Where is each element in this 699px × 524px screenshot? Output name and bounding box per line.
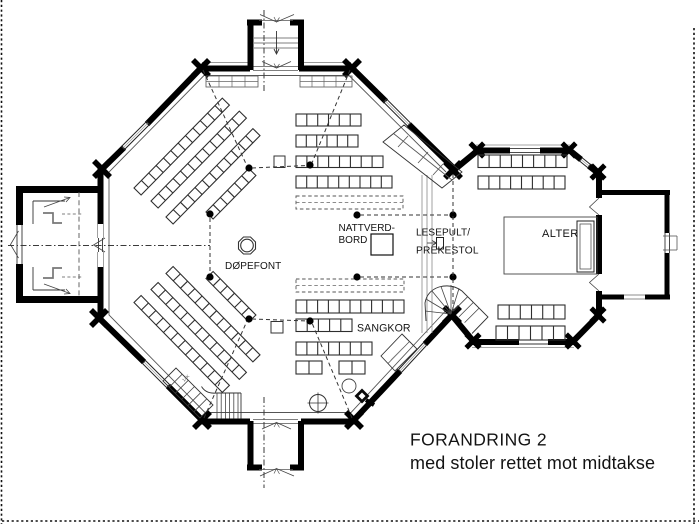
svg-text:BORD: BORD (339, 235, 368, 246)
svg-text:ALTER: ALTER (542, 228, 579, 240)
svg-text:DØPEFONT: DØPEFONT (225, 261, 281, 272)
svg-text:NATTVERD-: NATTVERD- (339, 223, 395, 234)
svg-text:LESEPULT/: LESEPULT/ (416, 228, 470, 239)
svg-text:SANGKOR: SANGKOR (357, 323, 411, 335)
svg-text:PREKESTOL: PREKESTOL (416, 246, 479, 257)
svg-text:med stoler rettet mot midtakse: med stoler rettet mot midtakse (410, 453, 655, 473)
svg-text:FORANDRING 2: FORANDRING 2 (410, 430, 547, 450)
